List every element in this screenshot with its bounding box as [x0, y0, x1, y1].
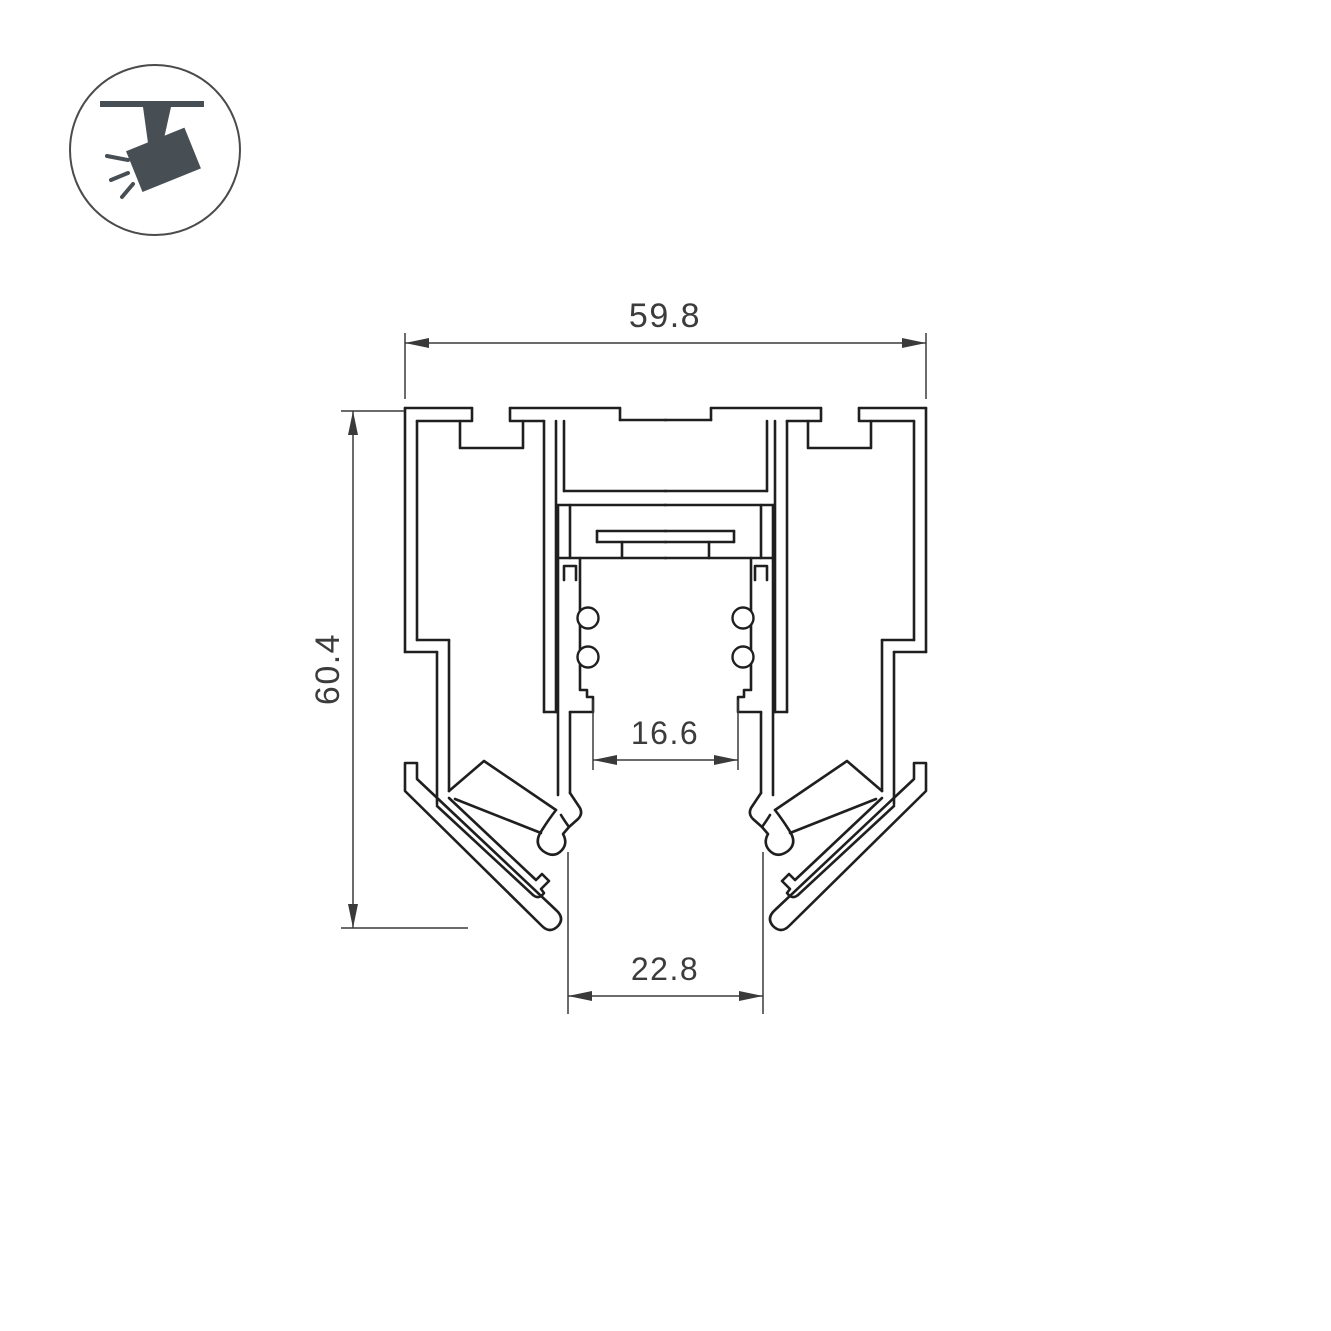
dim-label-overall-width: 59.8 — [629, 297, 701, 335]
technical-drawing: 59.8 60.4 16.6 22.8 — [0, 0, 1331, 1331]
dimension-overall-width: 59.8 — [405, 297, 926, 399]
dim-label-overall-height: 60.4 — [309, 633, 347, 705]
icon-ceiling-bar — [100, 101, 204, 107]
dimension-track-opening: 16.6 — [593, 700, 738, 770]
track-spotlight-icon — [70, 65, 240, 235]
dim-label-track-opening: 16.6 — [631, 715, 699, 751]
profile-right-half — [665, 408, 926, 930]
dimension-overall-height: 60.4 — [309, 411, 468, 928]
dimension-bottom-opening: 22.8 — [568, 852, 763, 1014]
dim-label-bottom-opening: 22.8 — [631, 951, 699, 987]
profile-cross-section — [405, 408, 926, 930]
drawing-canvas: 59.8 60.4 16.6 22.8 — [0, 0, 1331, 1331]
profile-left-half — [405, 408, 666, 930]
